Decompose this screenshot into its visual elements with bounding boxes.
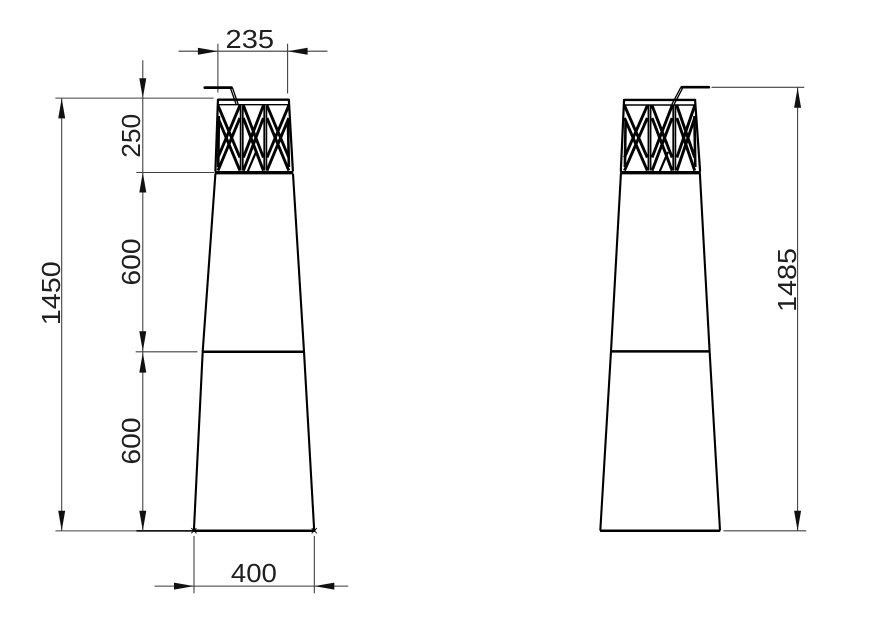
svg-text:250: 250	[118, 114, 146, 158]
svg-text:600: 600	[118, 239, 146, 286]
svg-text:1450: 1450	[38, 261, 66, 325]
svg-text:400: 400	[231, 560, 277, 588]
svg-text:600: 600	[118, 418, 146, 465]
svg-text:1485: 1485	[774, 248, 802, 312]
svg-text:235: 235	[226, 26, 275, 54]
